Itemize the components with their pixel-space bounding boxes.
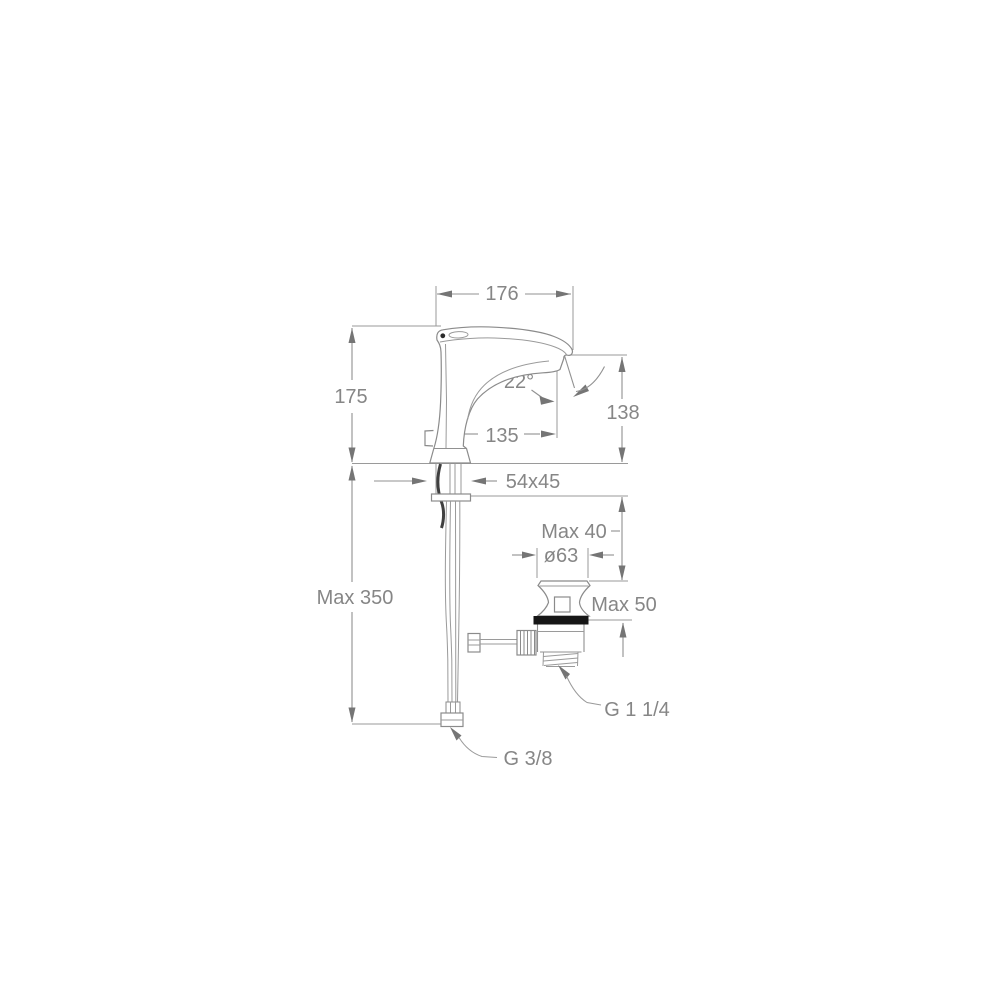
dimension-hose-length: Max 350 [317,466,394,723]
callout-drain-thread: G 1 1/4 [558,665,670,721]
hose-thread-step [446,702,460,713]
label-g114: G 1 1/4 [604,699,670,721]
mounting-flange [432,494,471,501]
dim-label-max50: Max 50 [591,594,657,616]
arrow-up [620,623,627,638]
arrow-left [437,291,452,298]
faucet-dimension-drawing: 176 175 Max 350 138 Max 40 ø63 [0,0,1000,1000]
rod-joint [468,634,480,653]
drain-assembly [534,581,591,667]
dimension-max-40: Max 40 [541,497,625,581]
supply-hose-4 [458,501,460,702]
dim-label-max40: Max 40 [541,521,607,543]
dimension-base-size: 54x45 [374,471,560,493]
dim-label-138: 138 [606,402,639,424]
stream-line [564,354,575,388]
drain-square-detail [555,597,571,612]
knurled-nut [517,631,536,656]
pop-up-linkage [468,631,536,656]
leader-line [567,676,602,705]
dim-label-max350: Max 350 [317,587,394,609]
dim-label-d63: ø63 [544,545,578,567]
technical-drawing-canvas: 176 175 Max 350 138 Max 40 ø63 [0,0,1000,1000]
arrow-up [619,497,626,512]
supply-hose-2 [450,501,452,702]
arrow-down [349,448,356,463]
dim-label-176: 176 [485,283,518,305]
arrow-left [589,552,603,559]
arrow-up [349,466,356,481]
dimension-max-50: Max 50 [591,594,657,657]
under-counter-assembly [432,464,471,727]
dimension-outlet-height: 138 [606,357,639,463]
handle-dot [440,333,445,338]
leader-line [459,738,497,758]
arrow-right [541,431,556,438]
side-button [425,431,434,447]
label-g38: G 3/8 [504,748,553,770]
arrow-down [619,566,626,581]
drain-thread [543,652,578,667]
dim-label-175: 175 [334,386,367,408]
dim-label-135: 135 [485,425,518,447]
dimension-spout-width: 176 [437,283,571,305]
dim-label-54x45: 54x45 [506,471,561,493]
arrow-up [349,328,356,343]
callout-supply-thread: G 3/8 [450,727,552,770]
dimension-body-height: 175 [334,328,367,463]
arrow-right [556,291,571,298]
supply-hose-1 [445,501,448,702]
dimension-drain-diameter: ø63 [512,545,614,567]
arrow-left [471,478,486,485]
arrow-right [522,552,536,559]
leader-arrow [540,396,555,405]
rubber-gasket [534,616,589,625]
stream-arc [576,367,605,392]
water-stream-indicator [564,354,605,397]
arrow-up [619,357,626,372]
arrow-right [412,478,427,485]
arrow-down [619,448,626,463]
leader-arrow [558,665,570,680]
arrow-down [349,708,356,723]
